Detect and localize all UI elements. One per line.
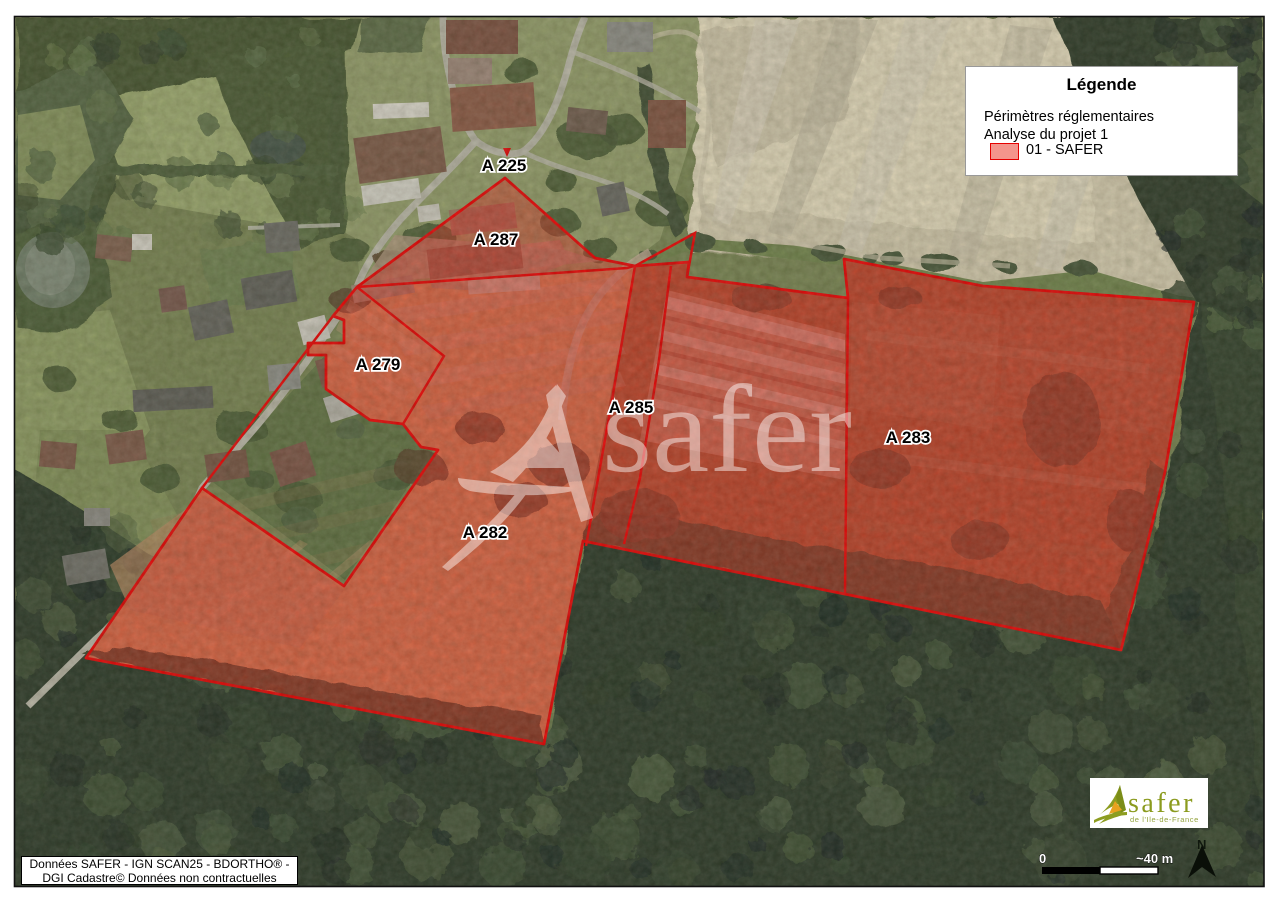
svg-text:~40 m: ~40 m [1136, 851, 1173, 866]
svg-text:A 282: A 282 [463, 523, 508, 542]
svg-text:A 285: A 285 [609, 398, 654, 417]
svg-text:0: 0 [1039, 851, 1046, 866]
svg-text:A 287: A 287 [474, 230, 519, 249]
svg-text:A 283: A 283 [886, 428, 931, 447]
svg-text:safer: safer [602, 361, 852, 499]
svg-text:A 225: A 225 [482, 156, 527, 175]
svg-text:A 279: A 279 [356, 355, 401, 374]
